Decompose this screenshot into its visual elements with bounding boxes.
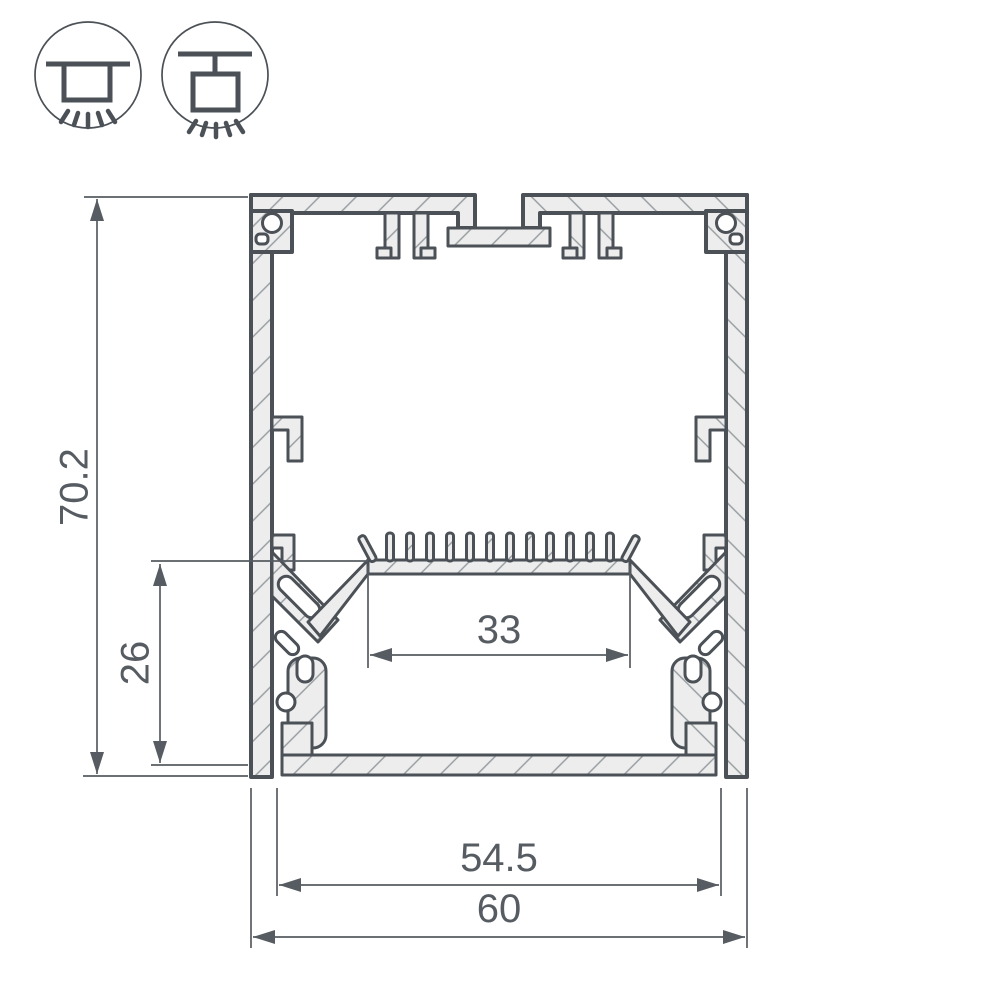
wall-hook-upper [272,417,302,461]
boss-side-notch [277,693,295,711]
pendant-light-icon [162,22,268,137]
arrow-right [723,930,745,944]
profile-right-half [523,195,747,777]
arrow-right [606,648,628,662]
heatsink-fins [358,533,640,563]
dim-label-inner-width: 54.5 [460,836,538,880]
technical-drawing-canvas: 70.2 26 33 54.5 [0,0,1000,1000]
angled-screw-slot-small [273,629,301,657]
surface-mount-light-icon [35,22,141,128]
top-slot-foot [377,248,391,258]
top-center-shelf [448,228,550,246]
dim-led-platform-width: 33 [368,566,630,668]
side-wall [251,195,272,777]
arrow-down [90,752,104,774]
dim-label-inner-height: 26 [114,641,158,686]
dim-inner-height: 26 [114,561,368,765]
dim-label-led-platform-width: 33 [477,608,522,652]
mount-type-icons [35,22,268,137]
boss-top-notch [297,656,313,682]
arrow-up [153,564,167,586]
diffuser-plate [282,755,716,775]
dim-overall-height: 70.2 [53,197,248,776]
fixture-box [193,74,238,110]
profile-left-half [251,195,475,777]
diffuser-shoulder [282,723,312,757]
profile-cross-section [251,195,747,777]
arrow-left [279,878,301,892]
dim-label-overall-width: 60 [477,887,522,931]
arrow-left [253,930,275,944]
light-rays [189,121,243,137]
top-slot-foot [421,248,435,258]
fixture-box [64,64,110,100]
arrow-down [153,741,167,763]
corner-channel-opening [256,234,268,244]
arrow-up [90,199,104,221]
arrow-left [370,648,392,662]
arrow-right [697,878,719,892]
corner-screw-channel [263,214,282,233]
dim-label-overall-height: 70.2 [53,448,97,526]
dim-inner-width: 54.5 [277,788,721,896]
